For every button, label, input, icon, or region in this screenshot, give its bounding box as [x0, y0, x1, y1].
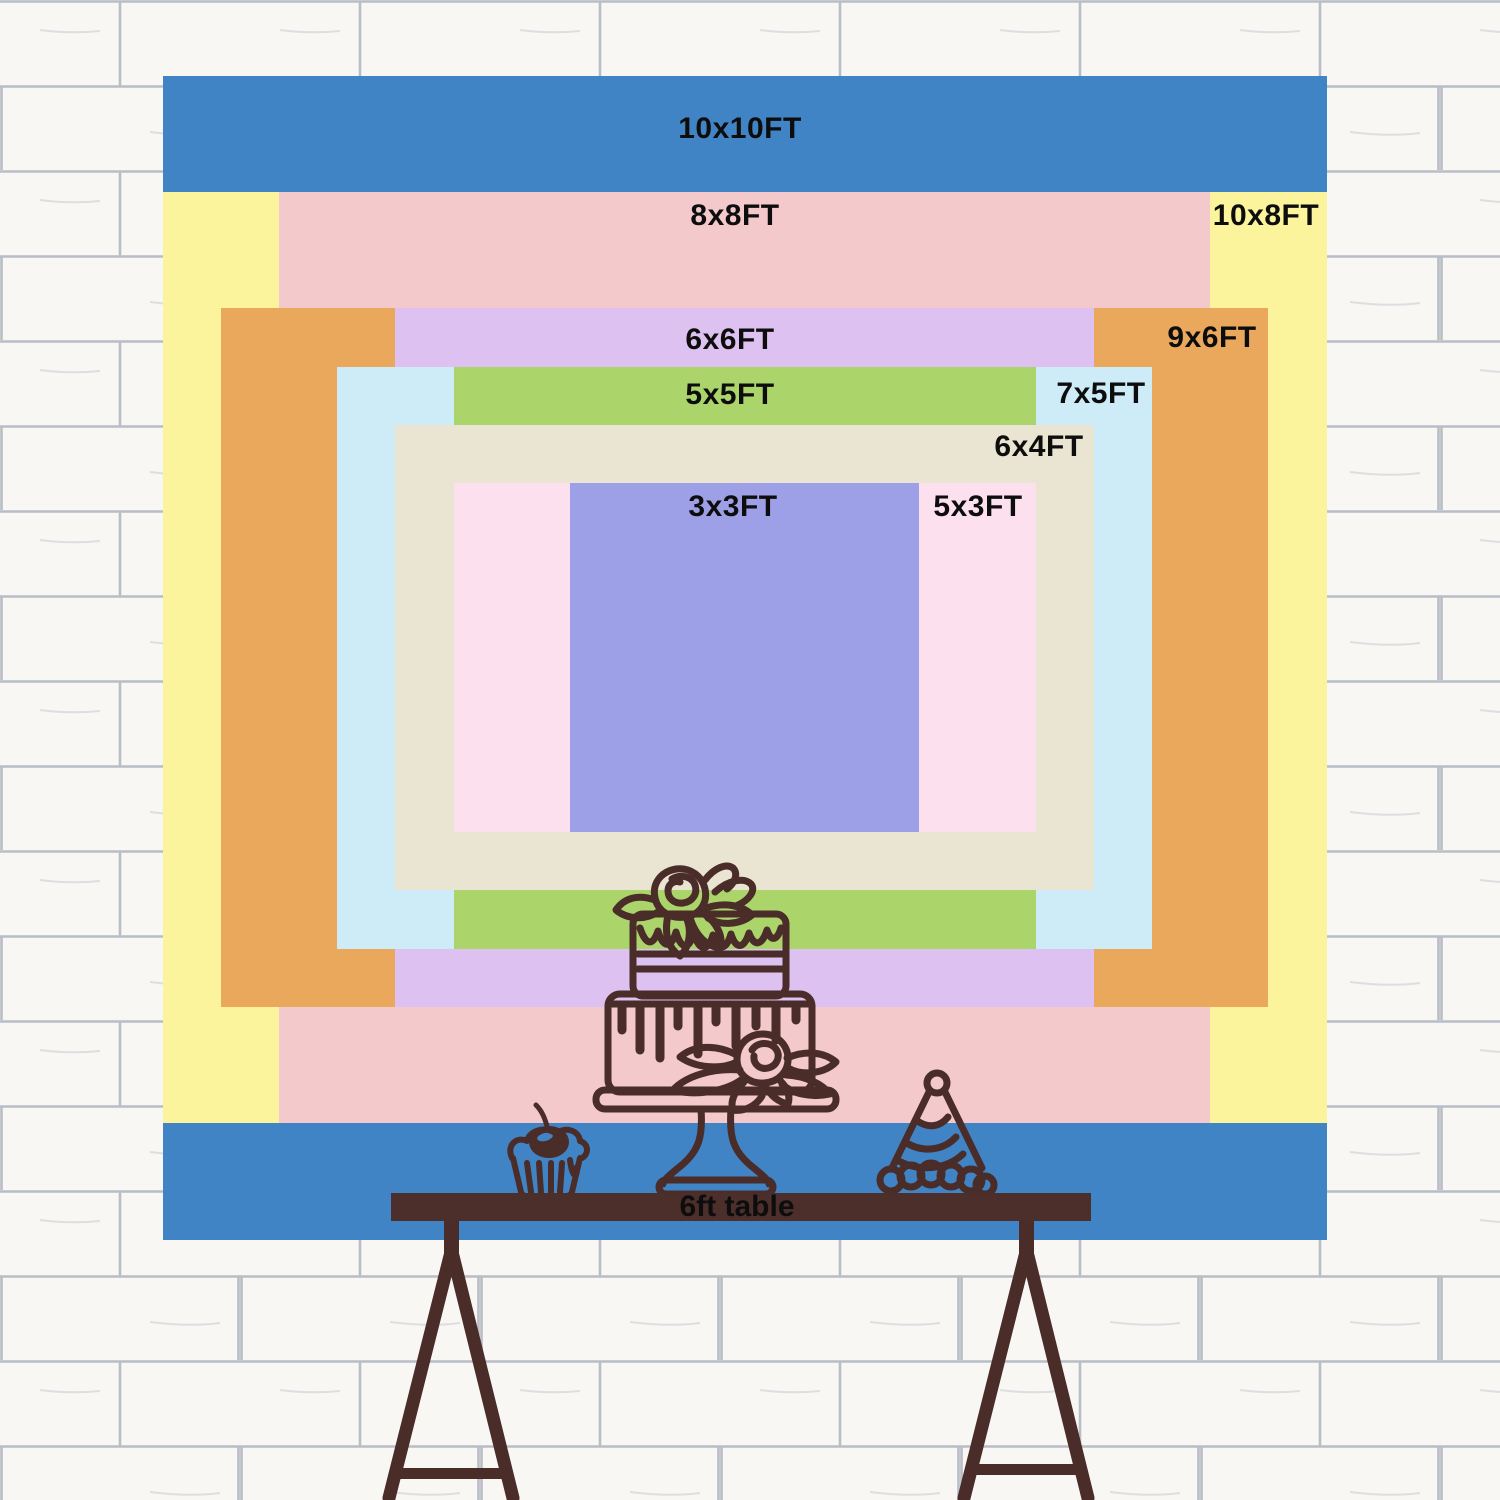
backdrop-size-stack: 10x10FT10x8FT8x8FT9x6FT6x6FT7x5FT5x5FT6x…: [0, 0, 1500, 1500]
size-label-8x8ft: 8x8FT: [690, 199, 779, 233]
size-label-10x10ft: 10x10FT: [678, 112, 802, 146]
table-size-label: 6ft table: [679, 1190, 794, 1224]
size-chart-graphic: 10x10FT10x8FT8x8FT9x6FT6x6FT7x5FT5x5FT6x…: [0, 0, 1500, 1500]
size-label-10x8ft: 10x8FT: [1213, 199, 1319, 233]
size-rect-3x3ft: [570, 483, 919, 832]
size-label-6x4ft: 6x4FT: [994, 430, 1083, 464]
size-label-5x3ft: 5x3FT: [933, 490, 1022, 524]
size-label-6x6ft: 6x6FT: [685, 323, 774, 357]
size-label-5x5ft: 5x5FT: [685, 378, 774, 412]
size-label-9x6ft: 9x6FT: [1167, 321, 1256, 355]
size-label-3x3ft: 3x3FT: [688, 490, 777, 524]
size-label-7x5ft: 7x5FT: [1056, 377, 1145, 411]
